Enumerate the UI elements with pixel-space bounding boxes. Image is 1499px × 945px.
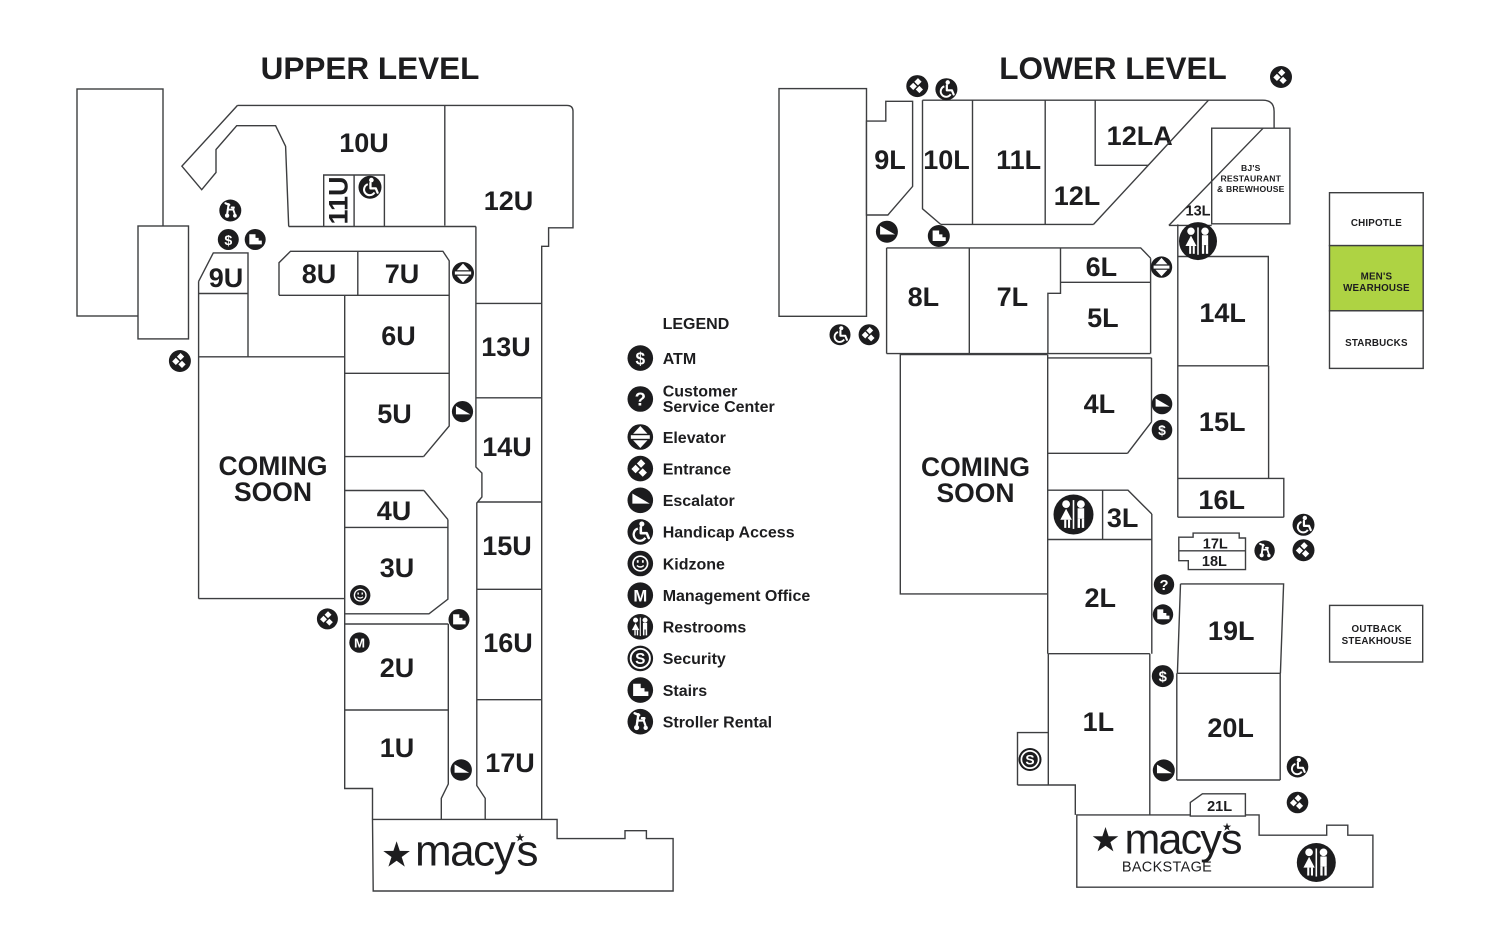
svg-text:2U: 2U xyxy=(380,653,415,683)
svg-text:Kidzone: Kidzone xyxy=(663,556,725,573)
svg-text:15L: 15L xyxy=(1199,407,1246,437)
svg-text:16L: 16L xyxy=(1198,485,1245,515)
svg-text:10L: 10L xyxy=(923,145,970,175)
svg-text:Stroller Rental: Stroller Rental xyxy=(663,715,772,732)
svg-text:macy: macy xyxy=(415,827,516,876)
svg-text:3L: 3L xyxy=(1107,503,1139,533)
svg-text:17L: 17L xyxy=(1203,537,1228,553)
svg-text:BJ'S: BJ'S xyxy=(1241,163,1261,173)
svg-text:4U: 4U xyxy=(377,496,412,526)
svg-text:5L: 5L xyxy=(1087,303,1119,333)
svg-text:19L: 19L xyxy=(1208,616,1255,646)
svg-text:STARBUCKS: STARBUCKS xyxy=(1345,338,1408,349)
svg-text:Management Office: Management Office xyxy=(663,588,811,605)
svg-text:CHIPOTLE: CHIPOTLE xyxy=(1351,218,1402,229)
svg-text:12L: 12L xyxy=(1054,181,1101,211)
svg-text:10U: 10U xyxy=(339,128,389,158)
svg-text:7L: 7L xyxy=(997,282,1029,312)
svg-text:Handicap Access: Handicap Access xyxy=(663,525,795,542)
svg-text:8L: 8L xyxy=(908,282,940,312)
svg-text:Security: Security xyxy=(663,651,726,668)
svg-text:MEN'S: MEN'S xyxy=(1361,272,1393,283)
svg-text:17U: 17U xyxy=(485,748,535,778)
svg-text:STEAKHOUSE: STEAKHOUSE xyxy=(1342,636,1412,647)
svg-text:6U: 6U xyxy=(381,321,416,351)
svg-text:15U: 15U xyxy=(482,531,532,561)
svg-text:9L: 9L xyxy=(874,145,906,175)
svg-text:BACKSTAGE: BACKSTAGE xyxy=(1122,860,1212,876)
svg-text:12U: 12U xyxy=(484,186,534,216)
svg-text:s: s xyxy=(517,827,539,876)
svg-text:Entrance: Entrance xyxy=(663,461,732,478)
svg-text:ATM: ATM xyxy=(663,351,696,368)
svg-text:4L: 4L xyxy=(1084,389,1116,419)
svg-text:18L: 18L xyxy=(1202,554,1227,570)
svg-text:9U: 9U xyxy=(209,263,244,293)
svg-text:3U: 3U xyxy=(380,553,415,583)
svg-text:LOWER LEVEL: LOWER LEVEL xyxy=(999,50,1227,86)
svg-text:11U: 11U xyxy=(324,176,354,224)
svg-text:16U: 16U xyxy=(483,628,533,658)
svg-text:SOON: SOON xyxy=(234,477,312,507)
svg-text:SOON: SOON xyxy=(936,478,1014,508)
svg-text:& BREWHOUSE: & BREWHOUSE xyxy=(1217,184,1285,194)
svg-text:11L: 11L xyxy=(996,145,1041,175)
svg-text:20L: 20L xyxy=(1207,713,1254,743)
svg-text:1L: 1L xyxy=(1083,707,1115,737)
svg-text:Restrooms: Restrooms xyxy=(663,620,747,637)
svg-text:5U: 5U xyxy=(377,399,412,429)
svg-text:8U: 8U xyxy=(302,259,337,289)
svg-text:Stairs: Stairs xyxy=(663,683,708,700)
svg-text:OUTBACK: OUTBACK xyxy=(1352,624,1402,635)
svg-text:1U: 1U xyxy=(380,733,415,763)
svg-text:14U: 14U xyxy=(482,432,532,462)
svg-text:21L: 21L xyxy=(1207,799,1232,815)
svg-text:14L: 14L xyxy=(1199,298,1246,328)
svg-text:13L: 13L xyxy=(1186,204,1211,220)
svg-text:Customer: Customer xyxy=(663,384,738,401)
svg-text:Elevator: Elevator xyxy=(663,430,726,447)
svg-text:2L: 2L xyxy=(1085,583,1117,613)
svg-text:UPPER LEVEL: UPPER LEVEL xyxy=(261,50,480,86)
svg-text:s: s xyxy=(1221,815,1243,863)
svg-text:12LA: 12LA xyxy=(1107,121,1173,151)
svg-text:Service Center: Service Center xyxy=(663,399,775,416)
svg-text:7U: 7U xyxy=(385,259,420,289)
svg-text:LEGEND: LEGEND xyxy=(663,316,730,333)
svg-text:Escalator: Escalator xyxy=(663,493,735,510)
svg-text:macy: macy xyxy=(1125,815,1223,863)
svg-text:6L: 6L xyxy=(1086,252,1118,282)
svg-text:13U: 13U xyxy=(481,332,531,362)
svg-text:WEARHOUSE: WEARHOUSE xyxy=(1343,283,1410,294)
svg-text:RESTAURANT: RESTAURANT xyxy=(1221,174,1282,184)
